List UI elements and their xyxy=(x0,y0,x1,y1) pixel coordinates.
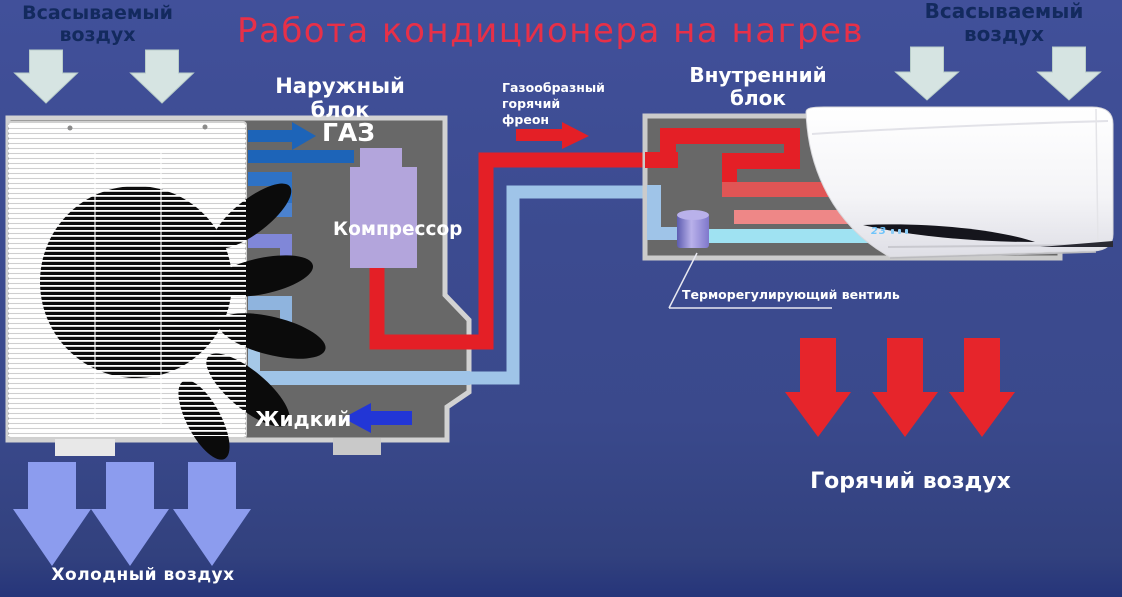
cold-coil-segment xyxy=(700,229,880,243)
grille-seam xyxy=(94,150,96,422)
outdoor-unit-label: Наружный блок xyxy=(245,74,435,122)
display-indicator-icon xyxy=(891,229,894,234)
freon-label: Газообразный горячий фреон xyxy=(502,80,605,128)
coil-segment xyxy=(248,150,354,163)
intake-down-arrow-icon xyxy=(15,50,78,103)
hot-air-arrows xyxy=(785,338,1015,437)
page-title: Работа кондиционера на нагрев xyxy=(237,12,864,51)
cold-air-arrows xyxy=(13,462,251,566)
expansion-valve xyxy=(677,210,709,248)
indoor-unit-label: Внутренний блок xyxy=(658,64,858,110)
hot-air-down-arrow-icon xyxy=(872,338,938,437)
indoor-unit xyxy=(645,107,1113,308)
intake-down-arrow-icon xyxy=(131,50,194,103)
display-indicator-icon xyxy=(905,229,908,234)
intake-down-arrow-icon xyxy=(896,47,959,100)
screw xyxy=(68,126,73,131)
outdoor-unit-foot-left xyxy=(55,438,115,456)
intake-air-label-right: Всасываемый воздух xyxy=(915,0,1093,46)
intake-down-arrow-icon xyxy=(1038,47,1101,100)
hot-air-down-arrow-icon xyxy=(949,338,1015,437)
hot-air-label: Горячий воздух xyxy=(808,469,1013,494)
compressor-label: Компрессор xyxy=(333,219,462,240)
outdoor-unit-foot-right xyxy=(333,438,381,455)
display-indicator-icon xyxy=(898,229,901,234)
screw xyxy=(203,125,208,130)
coil-bottom-pipe xyxy=(248,371,470,385)
ac-display-temperature: 23 xyxy=(871,226,887,237)
intake-arrows-left xyxy=(15,50,194,103)
cold-air-down-arrow-icon xyxy=(173,462,251,566)
cold-air-label: Холодный воздух xyxy=(48,566,238,586)
cold-air-down-arrow-icon xyxy=(91,462,169,566)
thermo-valve-label: Терморегулирующий вентиль xyxy=(682,288,900,302)
grille-bars xyxy=(8,124,246,436)
intake-air-label-left: Всасываемый воздух xyxy=(15,3,180,47)
diagram-canvas: Работа кондиционера на нагрев Всасываемы… xyxy=(0,0,1122,597)
gas-label: ГАЗ xyxy=(322,119,375,148)
cold-air-down-arrow-icon xyxy=(13,462,91,566)
valve-top xyxy=(677,210,709,220)
hot-air-down-arrow-icon xyxy=(785,338,851,437)
hot-coil-segment xyxy=(660,128,800,144)
ac-display: 23 xyxy=(871,226,908,237)
grille-seam xyxy=(160,150,162,426)
intake-arrows-right xyxy=(896,47,1101,100)
liquid-label: Жидкий xyxy=(255,408,351,431)
